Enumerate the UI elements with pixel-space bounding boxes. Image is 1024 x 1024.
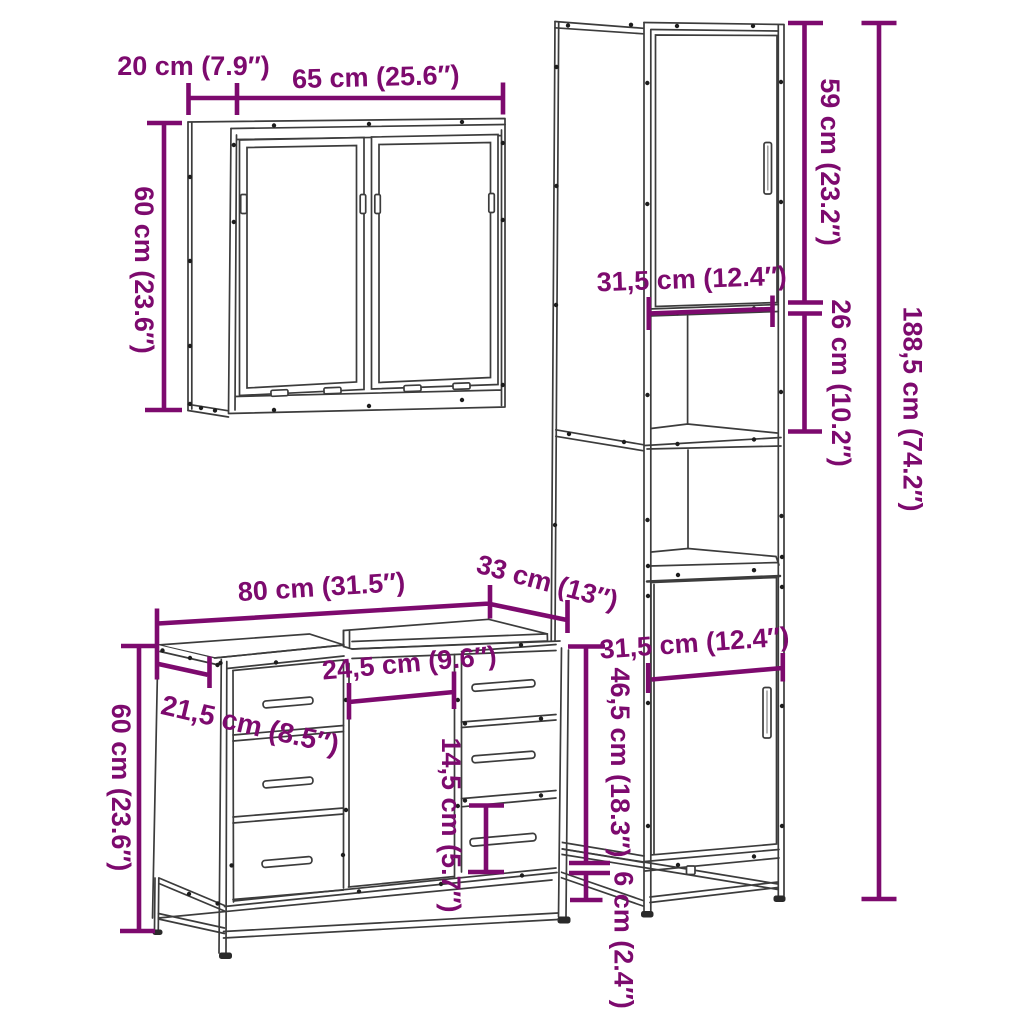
svg-text:20 cm (7.9″): 20 cm (7.9″) bbox=[117, 51, 270, 81]
svg-text:46,5 cm (18.3″): 46,5 cm (18.3″) bbox=[605, 667, 635, 857]
svg-text:188,5 cm (74.2″): 188,5 cm (74.2″) bbox=[898, 306, 928, 511]
svg-text:6 cm (2.4″): 6 cm (2.4″) bbox=[609, 871, 639, 1009]
svg-text:60 cm (23.6″): 60 cm (23.6″) bbox=[106, 704, 136, 872]
svg-text:65 cm (25.6″): 65 cm (25.6″) bbox=[292, 60, 460, 94]
svg-text:26 cm (10.2″): 26 cm (10.2″) bbox=[826, 299, 856, 467]
svg-text:59 cm (23.2″): 59 cm (23.2″) bbox=[815, 78, 845, 246]
svg-text:60 cm (23.6″): 60 cm (23.6″) bbox=[129, 186, 159, 354]
svg-text:14,5 cm (5.7″): 14,5 cm (5.7″) bbox=[436, 737, 466, 912]
